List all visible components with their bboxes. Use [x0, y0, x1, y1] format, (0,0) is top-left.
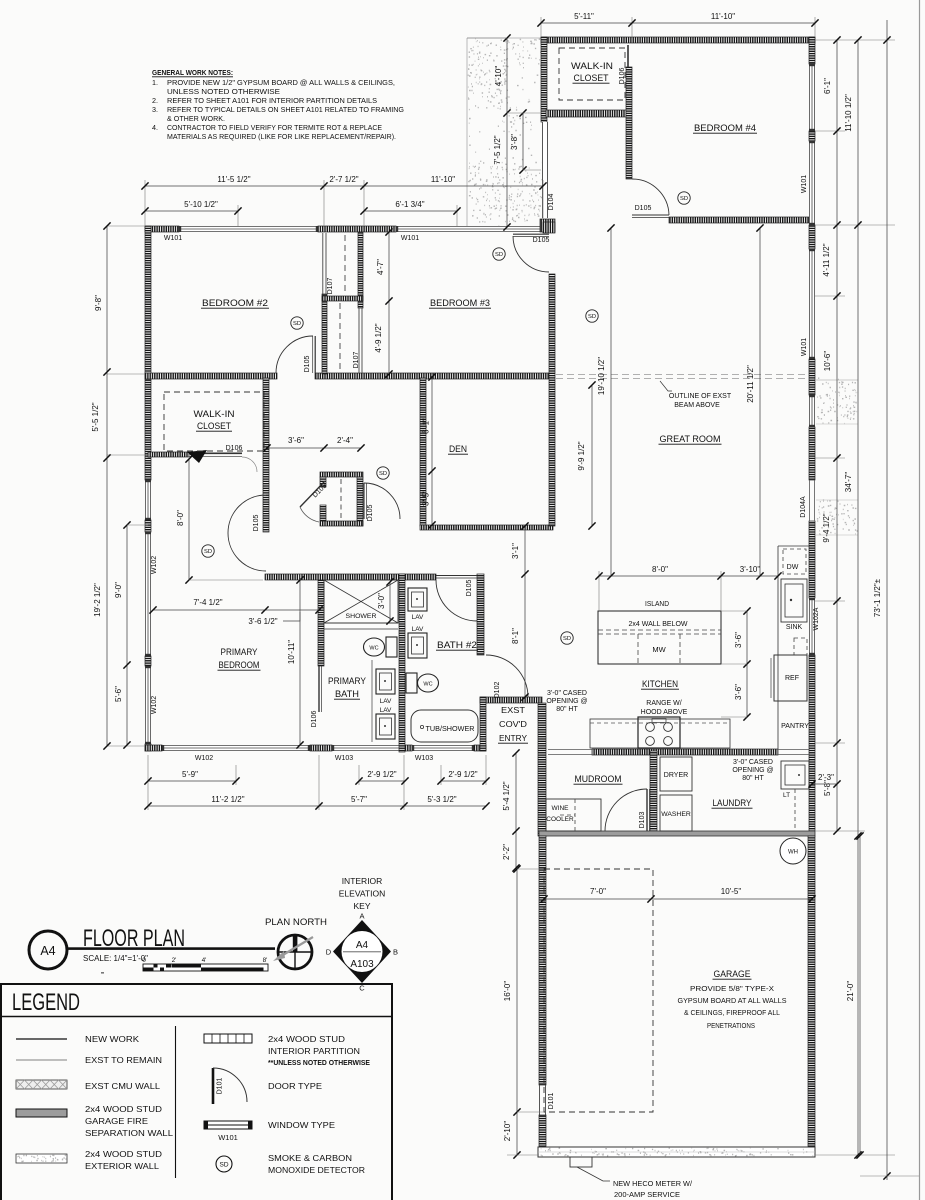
svg-text:CLOSET: CLOSET: [574, 73, 609, 83]
svg-text:6'-1": 6'-1": [823, 78, 832, 94]
svg-text:D106: D106: [619, 68, 626, 85]
svg-text:D105: D105: [466, 580, 473, 597]
svg-text:OPENING @: OPENING @: [546, 698, 587, 705]
svg-text:10'-5": 10'-5": [721, 887, 742, 896]
svg-text:2.: 2.: [152, 96, 158, 105]
svg-text:A103: A103: [350, 959, 374, 970]
svg-text:2'-7 1/2": 2'-7 1/2": [329, 175, 358, 184]
svg-text:11'-10": 11'-10": [431, 175, 455, 184]
svg-text:REFER TO TYPICAL DETAILS ON SH: REFER TO TYPICAL DETAILS ON SHEET A101 R…: [167, 105, 404, 114]
svg-text:HOOD ABOVE: HOOD ABOVE: [641, 709, 688, 716]
svg-text:SD: SD: [379, 471, 387, 477]
svg-text:11'-10": 11'-10": [711, 12, 735, 21]
svg-text:9'-4 1/2": 9'-4 1/2": [822, 513, 831, 542]
svg-text:D: D: [326, 948, 332, 957]
svg-text:2'-2": 2'-2": [502, 844, 511, 860]
svg-text:3'-6": 3'-6": [288, 436, 304, 445]
svg-text:KITCHEN: KITCHEN: [642, 679, 678, 690]
svg-text:& CEILINGS, FIREPROOF ALL: & CEILINGS, FIREPROOF ALL: [684, 1008, 780, 1017]
svg-text:20'-11 1/2": 20'-11 1/2": [746, 365, 755, 403]
svg-text:UNLESS NOTED OTHERWISE: UNLESS NOTED OTHERWISE: [167, 87, 280, 96]
svg-text:A4: A4: [40, 944, 55, 958]
svg-text:PANTRY: PANTRY: [781, 723, 809, 730]
svg-text:3'-8": 3'-8": [510, 134, 519, 150]
svg-text:D104A: D104A: [800, 496, 807, 518]
svg-text:PRIMARY: PRIMARY: [221, 647, 258, 657]
svg-text:5'-6": 5'-6": [114, 686, 123, 702]
svg-text:W102: W102: [151, 556, 158, 574]
svg-text:2'-9 1/2": 2'-9 1/2": [367, 770, 396, 779]
svg-text:MATERIALS AS REQUIRED (LIKE FO: MATERIALS AS REQUIRED (LIKE FOR LIKE REP…: [167, 132, 396, 141]
svg-text:DRYER: DRYER: [664, 772, 688, 779]
svg-text:3'-0": 3'-0": [377, 593, 386, 609]
svg-text:RANGE W/: RANGE W/: [646, 700, 681, 707]
svg-text:LT: LT: [783, 792, 790, 799]
svg-text:8'-0": 8'-0": [652, 565, 668, 574]
svg-text:D101: D101: [217, 1078, 224, 1095]
svg-text:D105: D105: [304, 356, 311, 373]
svg-text:D104: D104: [548, 194, 555, 211]
svg-text:80" HT: 80" HT: [556, 706, 578, 713]
svg-text:SEPARATION WALL: SEPARATION WALL: [85, 1128, 173, 1138]
svg-text:11'-5 1/2": 11'-5 1/2": [217, 175, 250, 184]
svg-text:W101: W101: [801, 338, 808, 356]
svg-text:LAV: LAV: [380, 698, 392, 705]
svg-text:5'-7": 5'-7": [351, 795, 367, 804]
svg-text:9'-9 1/2": 9'-9 1/2": [577, 441, 586, 470]
svg-text:PLAN NORTH: PLAN NORTH: [265, 917, 327, 927]
svg-text:OUTLINE OF EXST: OUTLINE OF EXST: [669, 393, 732, 400]
svg-text:DEN: DEN: [449, 444, 467, 455]
svg-text:W103: W103: [415, 755, 433, 762]
svg-text:6'-1": 6'-1": [422, 418, 431, 434]
svg-text:10'-11": 10'-11": [287, 640, 296, 664]
svg-text:D107: D107: [353, 352, 360, 369]
svg-text:D101: D101: [548, 1093, 555, 1110]
svg-text:2'-4": 2'-4": [337, 436, 353, 445]
svg-text:3'-6": 3'-6": [734, 684, 743, 700]
svg-text:SD: SD: [219, 1162, 228, 1169]
svg-text:GARAGE FIRE: GARAGE FIRE: [85, 1116, 149, 1126]
svg-text:GREAT ROOM: GREAT ROOM: [660, 434, 721, 445]
svg-text:8'-1": 8'-1": [511, 628, 520, 644]
svg-text:BATH #2: BATH #2: [437, 640, 477, 651]
svg-text:A: A: [359, 912, 364, 921]
svg-text:COOLER: COOLER: [546, 816, 574, 823]
svg-text:5'-11": 5'-11": [574, 12, 594, 21]
svg-text:19'-10 1/2": 19'-10 1/2": [597, 357, 606, 395]
svg-text:CONTRACTOR TO FIELD VERIFY FOR: CONTRACTOR TO FIELD VERIFY FOR TERMITE R…: [167, 123, 382, 132]
svg-text:WASHER: WASHER: [661, 811, 691, 818]
svg-text:SD: SD: [563, 636, 571, 642]
svg-text:2'-10": 2'-10": [503, 1121, 512, 1142]
svg-text:3'-10": 3'-10": [740, 565, 761, 574]
svg-text:REF: REF: [785, 675, 799, 682]
svg-text:21'-0": 21'-0": [846, 981, 855, 1002]
svg-text:BATH: BATH: [335, 689, 359, 699]
svg-text:D102: D102: [494, 682, 501, 699]
svg-text:D107: D107: [327, 278, 334, 295]
svg-text:W102: W102: [195, 755, 213, 762]
svg-text:10'-6": 10'-6": [823, 351, 832, 372]
svg-text:WH: WH: [788, 850, 798, 856]
svg-text:WC: WC: [369, 646, 378, 652]
svg-text:0: 0: [142, 957, 146, 964]
svg-text:4': 4': [202, 957, 207, 964]
svg-text:WINE: WINE: [552, 805, 570, 812]
svg-text:LAV: LAV: [412, 626, 424, 633]
svg-text:73'-1 1/2"±: 73'-1 1/2"±: [873, 578, 882, 617]
svg-text:D105: D105: [253, 515, 260, 532]
svg-text:EXTERIOR WALL: EXTERIOR WALL: [85, 1161, 159, 1171]
svg-text:SD: SD: [204, 549, 212, 555]
svg-text:BEDROOM #4: BEDROOM #4: [694, 123, 756, 134]
svg-text:BEDROOM #2: BEDROOM #2: [202, 298, 268, 309]
svg-text:GENERAL WORK NOTES:: GENERAL WORK NOTES:: [152, 68, 233, 77]
svg-text:2x4 WOOD STUD: 2x4 WOOD STUD: [85, 1104, 162, 1114]
svg-text:11'-2 1/2": 11'-2 1/2": [211, 795, 244, 804]
svg-text:4'-11 1/2": 4'-11 1/2": [822, 243, 831, 276]
svg-text:D105: D105: [635, 205, 652, 212]
svg-text:D106: D106: [226, 445, 243, 452]
svg-text:MONOXIDE DETECTOR: MONOXIDE DETECTOR: [268, 1165, 365, 1175]
svg-text:ELEVATION: ELEVATION: [339, 889, 385, 899]
svg-text:2'-3": 2'-3": [818, 773, 834, 782]
svg-text:2x4 WOOD STUD: 2x4 WOOD STUD: [85, 1149, 162, 1159]
svg-text:DW: DW: [787, 564, 799, 571]
svg-text:WALK-IN: WALK-IN: [194, 409, 235, 419]
svg-text:WINDOW TYPE: WINDOW TYPE: [268, 1120, 336, 1130]
svg-text:W101: W101: [218, 1133, 238, 1142]
svg-text:SD: SD: [588, 314, 596, 320]
svg-text:4.: 4.: [152, 123, 158, 132]
svg-text:ENTRY: ENTRY: [499, 733, 527, 743]
svg-text:B: B: [393, 948, 398, 957]
svg-text:4'-10": 4'-10": [494, 66, 503, 87]
svg-text:5'-8": 5'-8": [823, 780, 832, 796]
svg-text:9'-8": 9'-8": [94, 295, 103, 311]
svg-text:LAV: LAV: [412, 614, 424, 621]
svg-text:2': 2': [172, 957, 177, 964]
svg-text:3'-0" CASED: 3'-0" CASED: [547, 690, 587, 697]
svg-text:7'-5 1/2": 7'-5 1/2": [493, 135, 502, 164]
svg-text:KEY: KEY: [353, 901, 370, 911]
svg-text:4'-9 1/2": 4'-9 1/2": [374, 323, 383, 352]
svg-text:BEDROOM: BEDROOM: [219, 660, 260, 670]
svg-text:5'-9": 5'-9": [182, 770, 198, 779]
svg-text:W101: W101: [401, 235, 419, 242]
svg-text:5'-3 1/2": 5'-3 1/2": [427, 795, 456, 804]
svg-text:MUDROOM: MUDROOM: [575, 774, 622, 785]
svg-text:3.: 3.: [152, 105, 158, 114]
svg-text:LAUNDRY: LAUNDRY: [713, 798, 753, 809]
svg-text:EXST: EXST: [501, 705, 525, 715]
svg-text:FLOOR PLAN: FLOOR PLAN: [83, 925, 185, 952]
svg-text:34'-7": 34'-7": [844, 472, 853, 493]
svg-text:3'-6": 3'-6": [734, 632, 743, 648]
svg-text:2x4 WOOD STUD: 2x4 WOOD STUD: [268, 1034, 345, 1044]
svg-text:INTERIOR PARTITION: INTERIOR PARTITION: [268, 1046, 360, 1056]
svg-text:SINK: SINK: [786, 624, 803, 631]
svg-text:LAV: LAV: [380, 707, 392, 714]
svg-text:WALK-IN: WALK-IN: [571, 61, 613, 71]
svg-text:7'-0": 7'-0": [590, 887, 606, 896]
svg-text:5'-5 1/2": 5'-5 1/2": [91, 402, 100, 431]
svg-text:W101: W101: [801, 175, 808, 193]
svg-text:D105: D105: [367, 505, 374, 522]
svg-text:**UNLESS NOTED OTHERWISE: **UNLESS NOTED OTHERWISE: [268, 1060, 370, 1067]
svg-text:MW: MW: [652, 645, 666, 654]
svg-text:D103: D103: [639, 812, 646, 829]
svg-text:SD: SD: [680, 196, 688, 202]
svg-text:BEDROOM #3: BEDROOM #3: [430, 298, 490, 309]
svg-text:SD: SD: [293, 321, 301, 327]
svg-text:7'-4 1/2": 7'-4 1/2": [193, 598, 222, 607]
svg-text:3'-5": 3'-5": [422, 490, 431, 506]
svg-text:W102: W102: [151, 696, 158, 714]
svg-text:A4: A4: [356, 940, 369, 951]
svg-text:ISLAND: ISLAND: [645, 599, 670, 608]
svg-text:5'-10 1/2": 5'-10 1/2": [184, 200, 218, 209]
svg-text:INTERIOR: INTERIOR: [342, 876, 383, 886]
svg-text:1.: 1.: [152, 78, 158, 87]
svg-text:80" HT: 80" HT: [742, 775, 764, 782]
svg-text:& OTHER WORK.: & OTHER WORK.: [167, 114, 225, 123]
svg-text:3'-0" CASED: 3'-0" CASED: [733, 759, 773, 766]
svg-text:3'-6 1/2": 3'-6 1/2": [248, 617, 277, 626]
svg-text:PROVIDE 5/8" TYPE-X: PROVIDE 5/8" TYPE-X: [690, 984, 774, 993]
svg-text:GYPSUM BOARD AT ALL WALLS: GYPSUM BOARD AT ALL WALLS: [678, 996, 787, 1005]
svg-text:D106: D106: [311, 711, 318, 728]
svg-text:DOOR TYPE: DOOR TYPE: [268, 1081, 323, 1091]
svg-text:NEW WORK: NEW WORK: [85, 1034, 140, 1044]
svg-text:COV'D: COV'D: [499, 719, 527, 729]
svg-text:BEAM ABOVE: BEAM ABOVE: [674, 402, 720, 409]
svg-text:2'-9 1/2": 2'-9 1/2": [448, 770, 477, 779]
svg-text:TUB/SHOWER: TUB/SHOWER: [426, 726, 475, 733]
svg-text:6'-1 3/4": 6'-1 3/4": [395, 200, 424, 209]
svg-text:W101: W101: [164, 235, 182, 242]
svg-text:EXST CMU WALL: EXST CMU WALL: [85, 1081, 160, 1091]
svg-text:19'-2 1/2": 19'-2 1/2": [93, 583, 102, 617]
svg-text:REFER TO SHEET A101 FOR INTERI: REFER TO SHEET A101 FOR INTERIOR PARTITI…: [167, 96, 377, 105]
svg-text:WC: WC: [423, 682, 432, 688]
svg-text:D105: D105: [533, 237, 550, 244]
svg-text:GARAGE: GARAGE: [714, 969, 751, 980]
svg-text:SCALE: 1/4"=1'-0": SCALE: 1/4"=1'-0": [83, 954, 148, 963]
svg-text:W102A: W102A: [813, 607, 820, 630]
svg-text:5'-4 1/2": 5'-4 1/2": [502, 781, 511, 810]
svg-text:OPENING @: OPENING @: [732, 767, 773, 774]
svg-text:EXST TO REMAIN: EXST TO REMAIN: [85, 1055, 162, 1065]
svg-text:LEGEND: LEGEND: [12, 989, 80, 1016]
svg-text:W103: W103: [335, 755, 353, 762]
svg-text:PROVIDE NEW 1/2" GYPSUM BOARD: PROVIDE NEW 1/2" GYPSUM BOARD @ ALL WALL…: [167, 78, 395, 87]
svg-text:16'-0": 16'-0": [503, 981, 512, 1002]
svg-text:SMOKE & CARBON: SMOKE & CARBON: [268, 1153, 352, 1163]
svg-text:2x4 WALL BELOW: 2x4 WALL BELOW: [629, 619, 689, 628]
svg-text:4'-7": 4'-7": [376, 259, 385, 275]
svg-text:PENETRATIONS: PENETRATIONS: [707, 1021, 755, 1030]
svg-text:8': 8': [263, 957, 268, 964]
svg-text:CLOSET: CLOSET: [197, 421, 231, 431]
svg-text:SD: SD: [495, 252, 503, 258]
svg-text:8'-0": 8'-0": [176, 510, 185, 526]
svg-text:9'-0": 9'-0": [114, 582, 123, 598]
svg-text:200-AMP SERVICE: 200-AMP SERVICE: [614, 1190, 680, 1199]
svg-text:11'-10 1/2": 11'-10 1/2": [844, 94, 853, 132]
svg-text:SHOWER: SHOWER: [346, 613, 377, 620]
svg-text:3'-1": 3'-1": [511, 543, 520, 559]
svg-text:NEW HECO METER W/: NEW HECO METER W/: [613, 1179, 693, 1188]
svg-text:PRIMARY: PRIMARY: [328, 676, 366, 686]
